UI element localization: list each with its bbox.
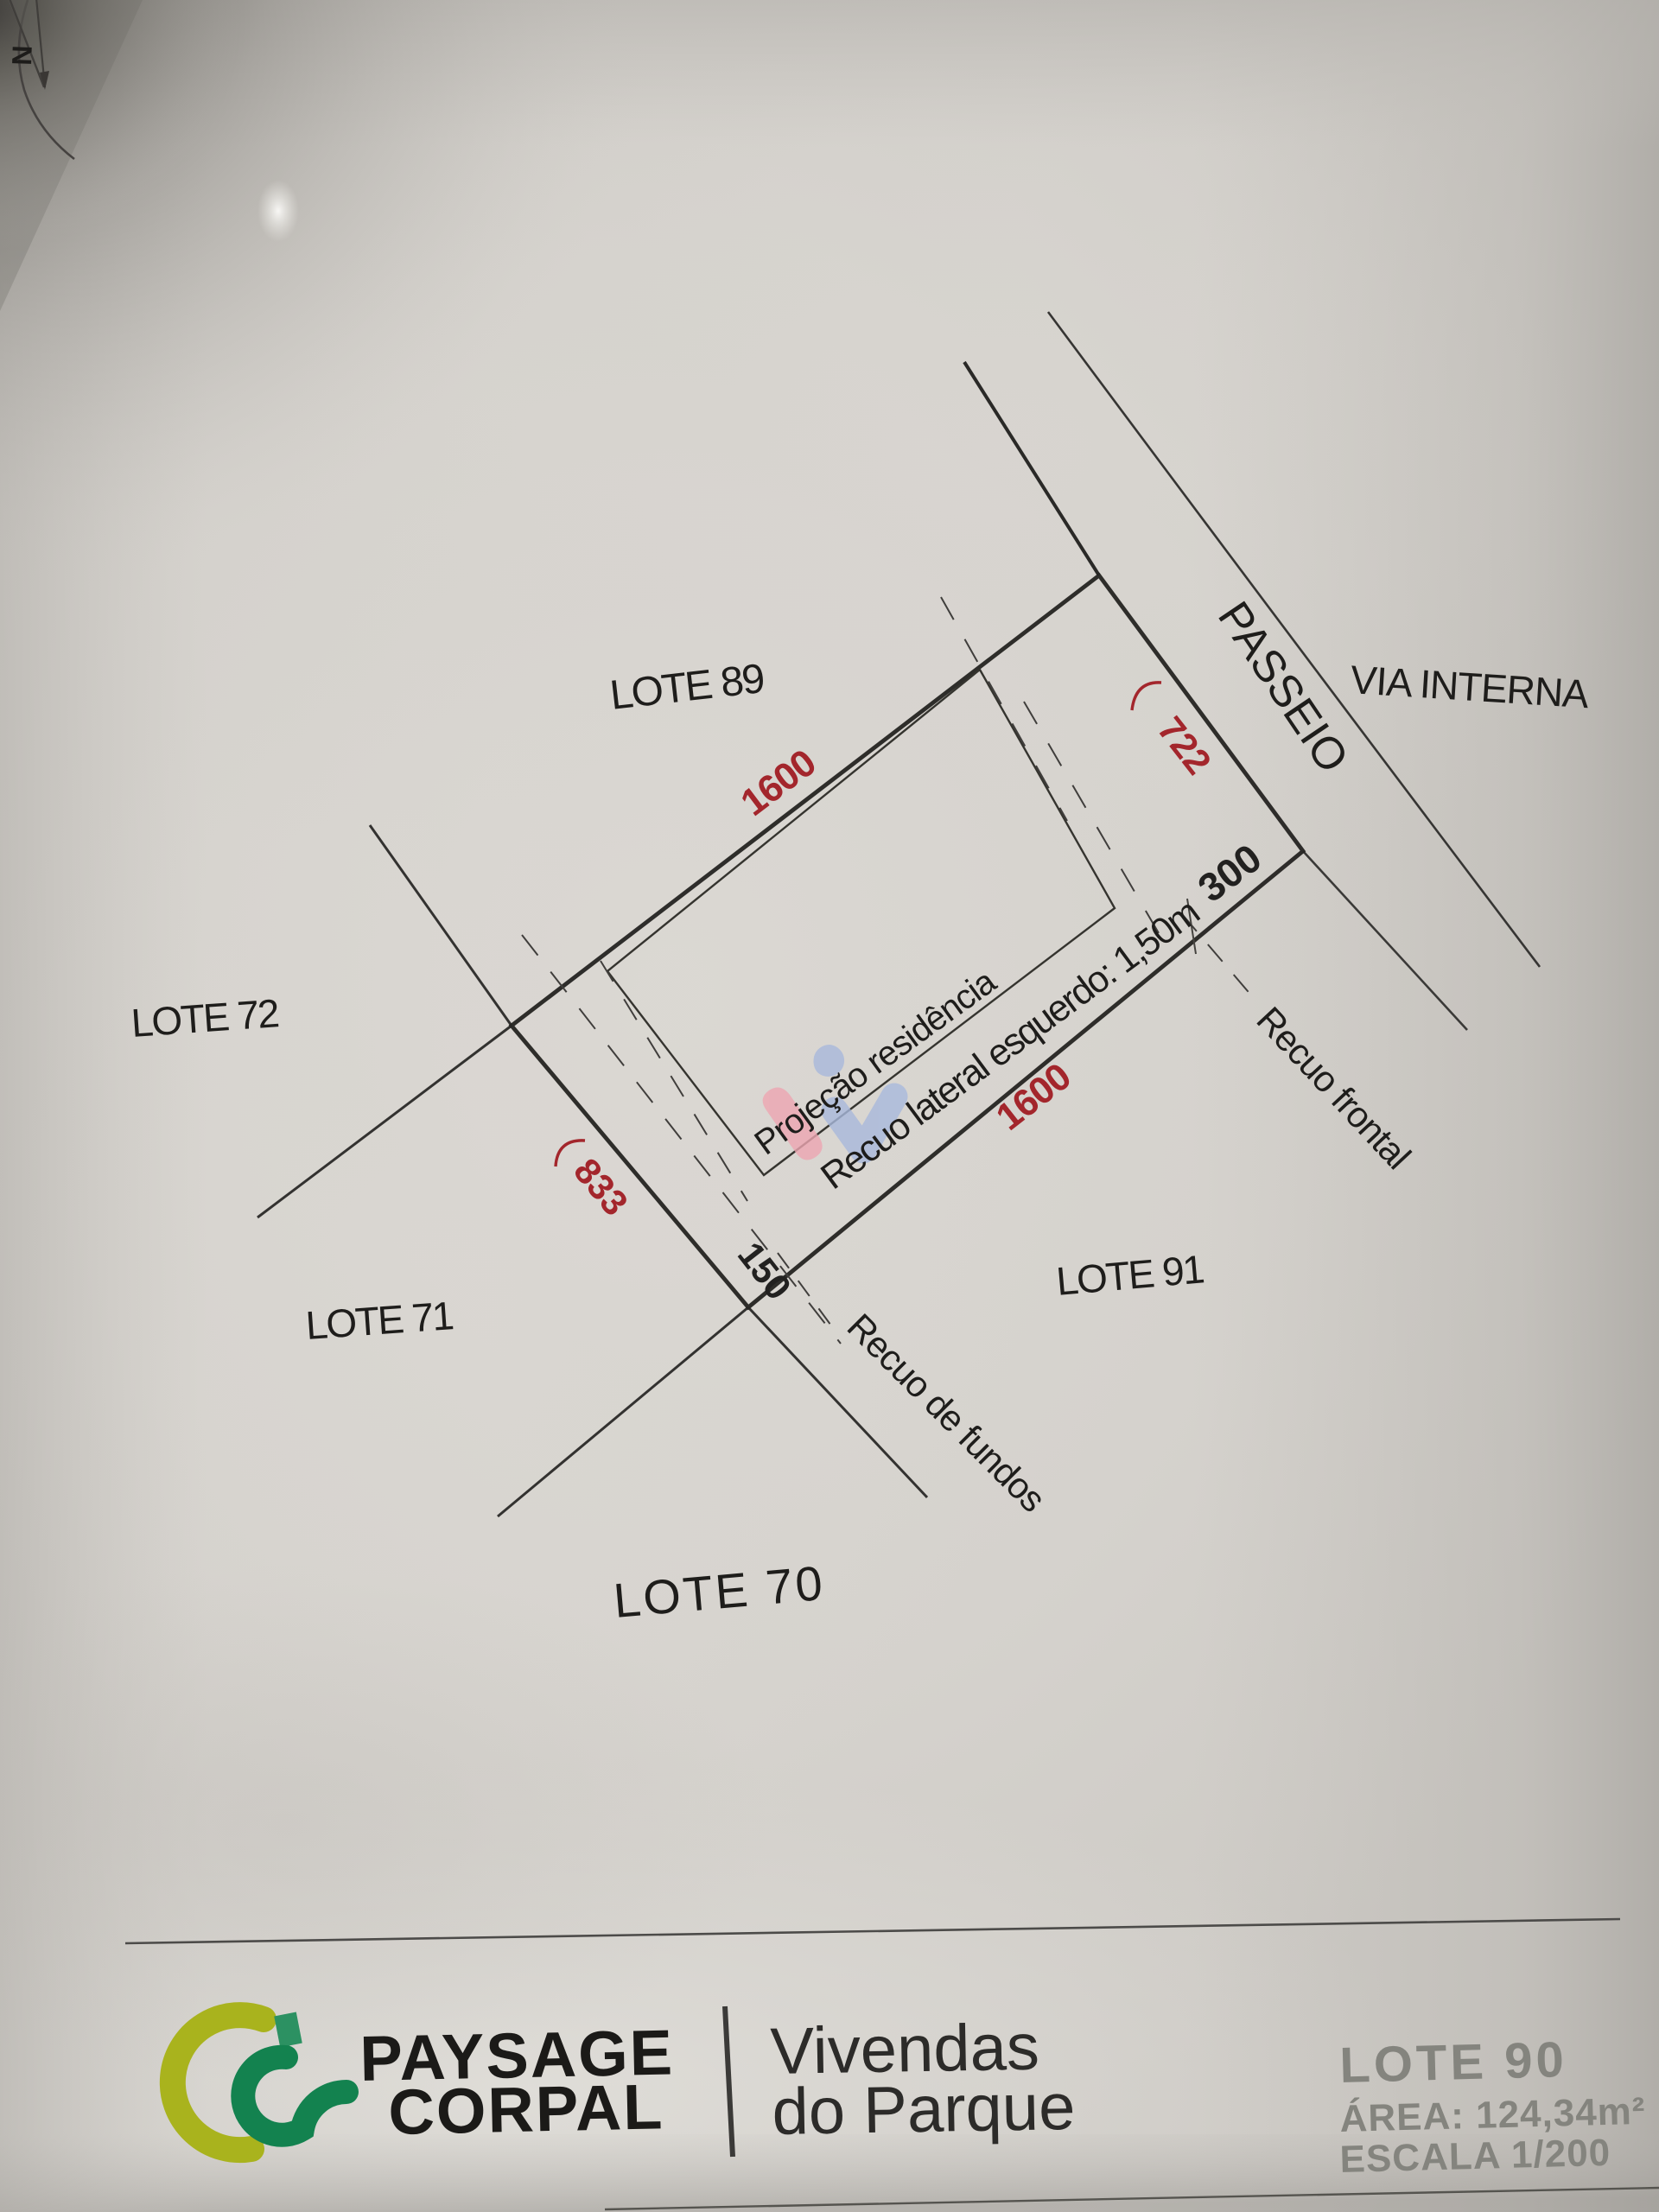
- svg-text:do Parque: do Parque: [772, 2070, 1076, 2149]
- svg-text:ESCALA 1/200: ESCALA 1/200: [1339, 2132, 1611, 2181]
- svg-text:LOTE 90: LOTE 90: [1339, 2031, 1568, 2094]
- svg-text:N: N: [6, 45, 38, 66]
- svg-text:CORPAL: CORPAL: [388, 2070, 665, 2148]
